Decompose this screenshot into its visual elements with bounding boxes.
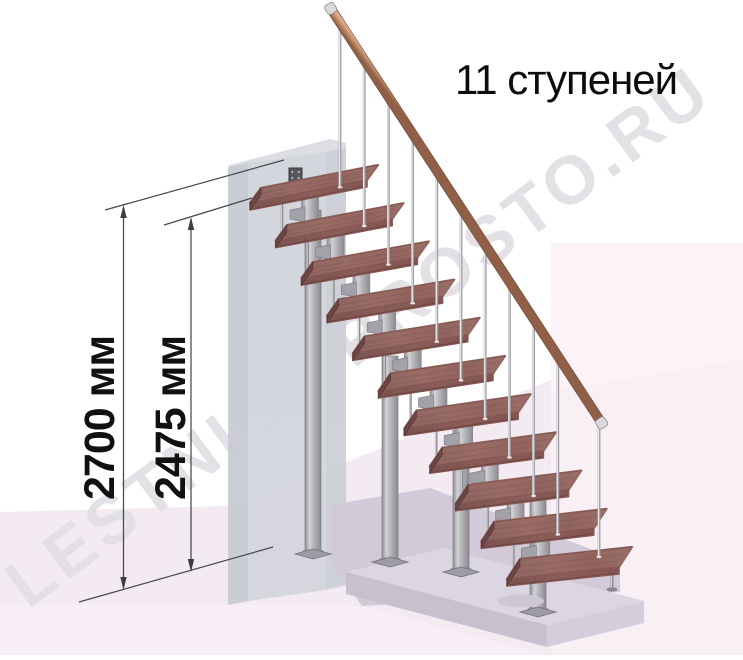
svg-text:2475 мм: 2475 мм: [147, 336, 195, 500]
svg-text:11 ступеней: 11 ступеней: [455, 56, 677, 103]
svg-text:2700 мм: 2700 мм: [76, 336, 124, 500]
